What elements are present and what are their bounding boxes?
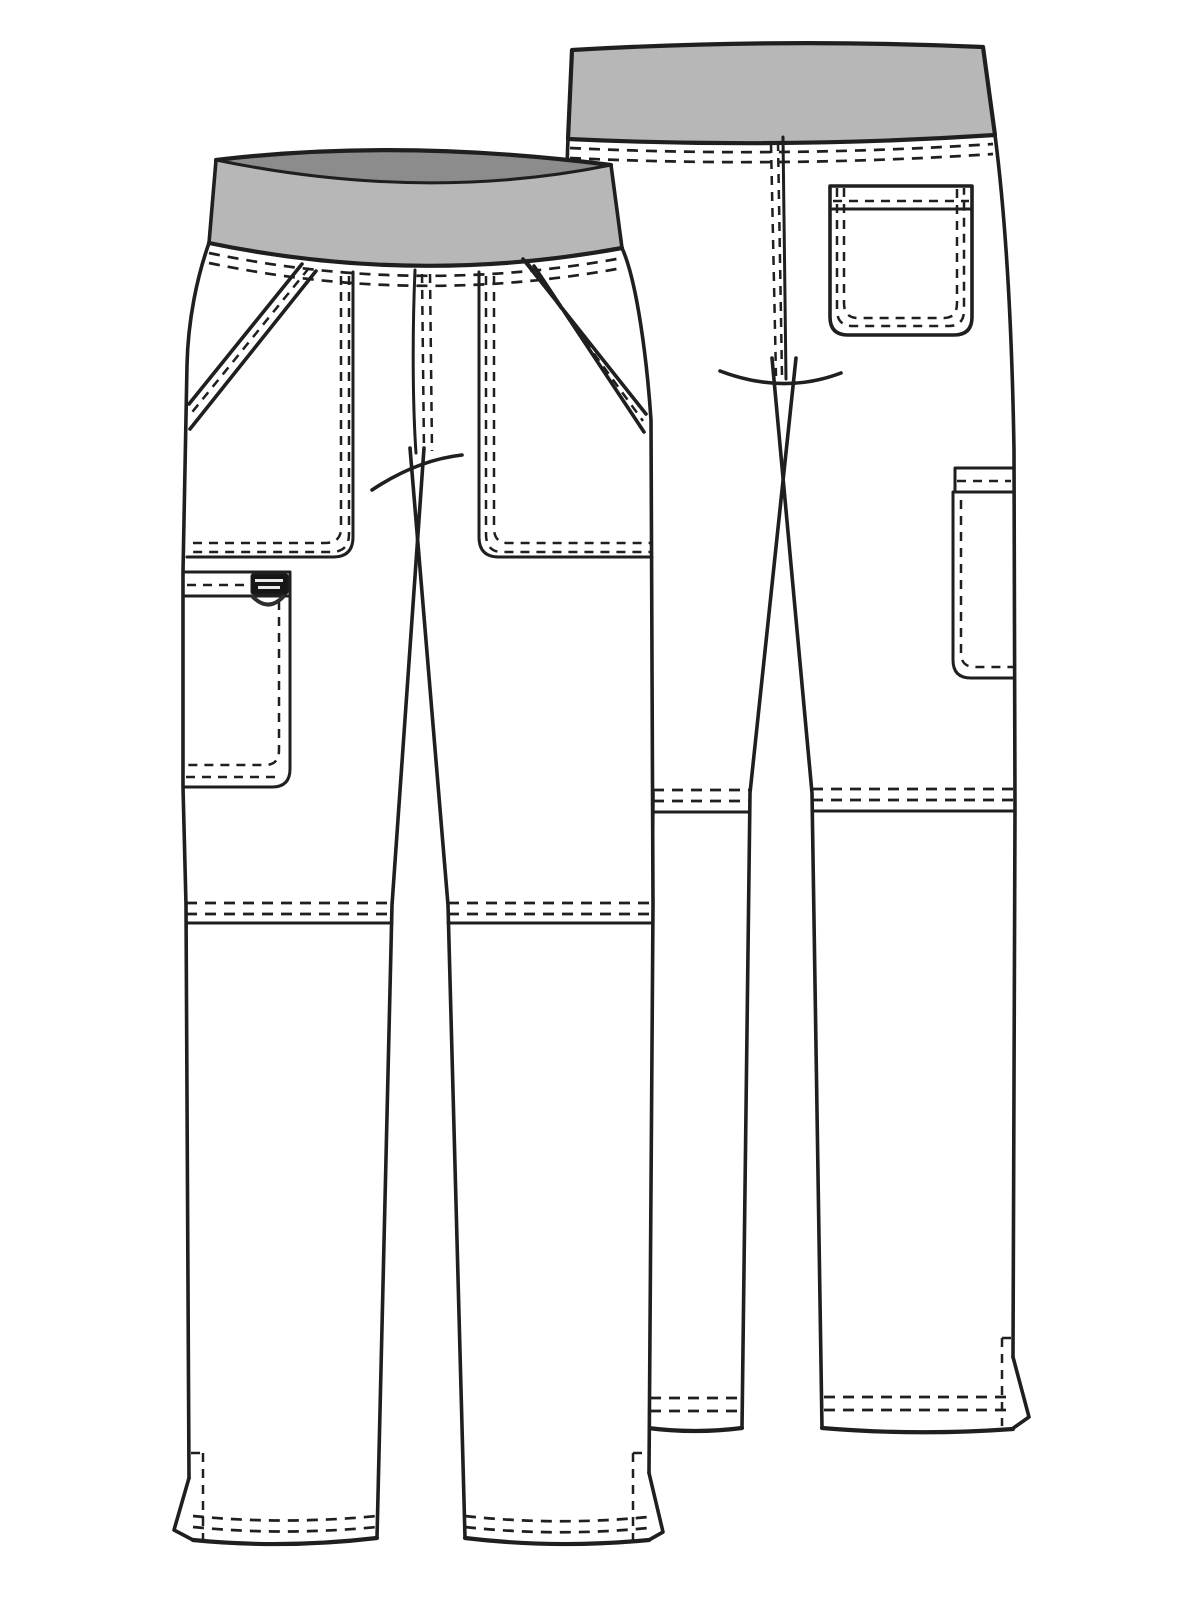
back-waistband — [568, 43, 995, 143]
back-knee-seam-lines — [653, 811, 1015, 812]
brand-label-patch — [251, 574, 288, 594]
technical-flat-sketch — [0, 0, 1200, 1600]
brand-label-text-line-2 — [258, 586, 280, 589]
sketch-canvas — [0, 0, 1200, 1600]
brand-label-text-line-1 — [255, 579, 283, 582]
front-view — [174, 150, 663, 1546]
brand-label — [251, 574, 288, 594]
